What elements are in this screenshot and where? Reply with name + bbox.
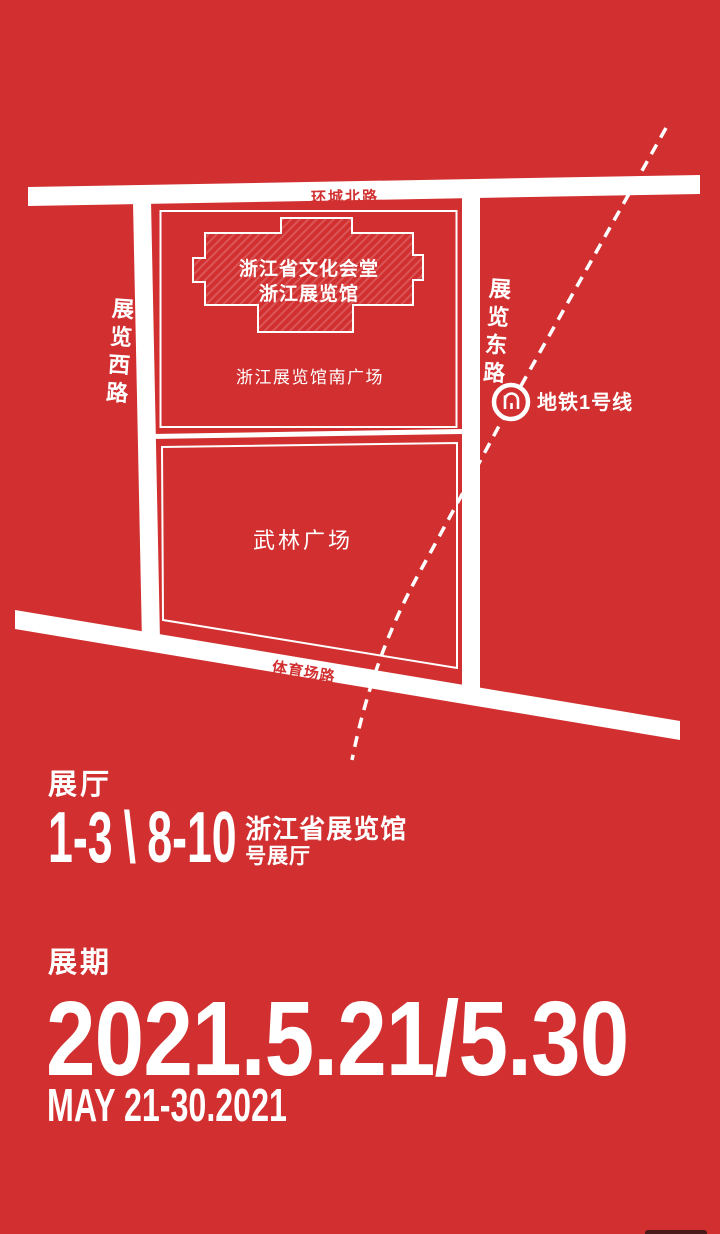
hall-range-1: 1-3	[48, 804, 113, 872]
hall-range-separator: \	[124, 804, 136, 872]
bottom-edge-artifact	[645, 1230, 707, 1234]
wulin-square-label: 武林广场	[253, 528, 353, 553]
road-north-label: 环城北路	[311, 187, 379, 206]
hall-venue-name: 浙江省展览馆	[245, 814, 407, 845]
south-square-label: 浙江展览馆南广场	[236, 368, 384, 387]
period-dates: 2021.5.21/5.30	[46, 986, 628, 1092]
metro-station-icon	[494, 385, 528, 419]
period-section-label: 展期	[48, 939, 112, 981]
building-label-line1: 浙江省文化会堂	[239, 257, 379, 280]
road-south-band	[15, 610, 680, 740]
road-minor-band	[151, 429, 462, 439]
road-west-band	[133, 201, 160, 642]
metro-line-label: 地铁1号线	[537, 390, 633, 414]
road-east-band	[462, 195, 480, 692]
halls-section-label: 展厅	[48, 761, 112, 803]
hall-venue: 浙江省展览馆 号展厅	[245, 804, 407, 869]
exhibition-location-poster: 浙江省文化会堂 浙江展览馆 浙江展览馆南广场 武林广场 环城北路 体育场路 地铁…	[0, 0, 720, 1234]
halls-info-row: 1-3 \ 8-10 浙江省展览馆 号展厅	[48, 804, 407, 872]
period-dates-english: MAY 21-30.2021	[47, 1082, 287, 1128]
building-label-line2: 浙江展览馆	[259, 282, 359, 305]
hall-venue-suffix: 号展厅	[245, 845, 407, 870]
hall-numbers: 1-3 \ 8-10	[48, 804, 237, 872]
wulin-square-block-outline	[162, 443, 457, 668]
hall-range-2: 8-10	[147, 804, 236, 872]
